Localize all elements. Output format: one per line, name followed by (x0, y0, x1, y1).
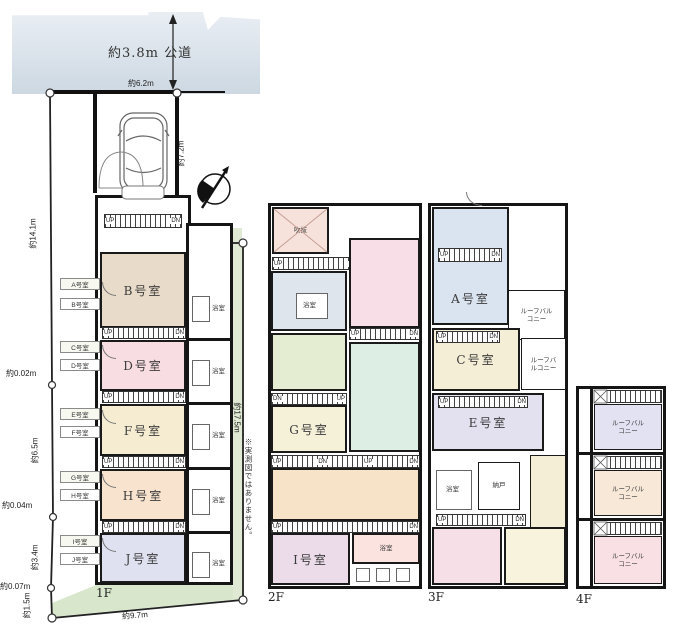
bath-label: 浴室 (303, 302, 316, 309)
dim-west-4: 約0.04m (2, 500, 32, 511)
floor-label-4f: 4F (576, 592, 592, 606)
room-2f-rose: 浴室 (352, 533, 420, 564)
wall (188, 338, 231, 341)
bath-label: 浴室 (212, 432, 225, 439)
floor-label-1f: 1F (96, 586, 112, 600)
entry-label-j: J号室 (60, 553, 100, 565)
room-2f-orange (271, 468, 420, 521)
stairs-1f-entry: UP DN (104, 214, 182, 228)
stairs-2f-g: DN UP (271, 393, 347, 405)
dn-label: DN (488, 334, 499, 340)
road-label: 約3.8m 公道 (108, 42, 192, 61)
dim-west-5: 約3.4m (29, 545, 40, 571)
dn-label: DN (317, 459, 328, 465)
bath-unit (192, 296, 210, 322)
dn-label: DN (174, 459, 185, 465)
bath-label: 浴室 (212, 560, 225, 567)
room-j-label: J号室 (126, 550, 161, 567)
dim-west-7: 約1.5m (21, 593, 32, 619)
dim-west-6: 約0.07m (0, 581, 30, 592)
bath-label: 浴室 (380, 545, 393, 552)
dim-south: 約9.7m (122, 609, 149, 622)
compass-icon (197, 166, 230, 208)
room-3f-pink (432, 527, 502, 585)
bath-unit (192, 489, 210, 515)
wall (576, 518, 666, 521)
up-label: UP (363, 459, 373, 465)
void-label: 吹抜 (294, 226, 307, 234)
gate-arcs (99, 152, 143, 188)
entry-label-c: C号室 (60, 341, 100, 353)
dn-label: DN (595, 460, 606, 466)
up-label: UP (105, 218, 115, 224)
west-fence-wall (93, 93, 97, 193)
wall (576, 452, 666, 455)
bath-label: 浴室 (446, 486, 459, 493)
storage-label: 納戸 (493, 482, 506, 489)
entry-label-b: B号室 (60, 298, 100, 310)
dn-label: DN (516, 399, 527, 405)
entry-label-f: F号室 (60, 426, 100, 438)
room-i: I号室 (271, 533, 350, 585)
up-label: UP (272, 524, 282, 530)
dn-label: DN (490, 252, 501, 258)
dn-label: DN (595, 526, 606, 532)
up-label: UP (272, 459, 282, 465)
stairs-3f-low: UP DN (436, 514, 526, 526)
bath-label: 浴室 (212, 497, 225, 504)
room-a-label: A号室 (451, 290, 490, 307)
roof-balcony-3f-2: ルーフバルコニー (521, 338, 566, 390)
car-icon (118, 113, 169, 193)
roof-balcony-label: ルーフバルコニー (520, 307, 554, 323)
entry-label-d: D号室 (60, 359, 100, 371)
dn-label: DN (272, 396, 283, 402)
room-g-label: G号室 (289, 421, 329, 438)
dim-west-1: 約14.1m (28, 218, 39, 248)
bath-unit (192, 424, 210, 450)
room-i-label: I号室 (293, 551, 328, 568)
up-label: UP (273, 261, 283, 267)
bath-label: 浴室 (212, 368, 225, 375)
roof-balcony-label: ルーフバルコニー (609, 419, 647, 435)
stairs-2f-low: UP DN (271, 521, 420, 533)
room-3f-storage: 納戸 (478, 462, 520, 510)
dn-label: DN (514, 517, 525, 523)
wall (590, 386, 593, 589)
entry-label-a: A号室 (60, 278, 100, 290)
wall (188, 531, 231, 534)
bath-unit (192, 360, 210, 386)
room-2f-void: 吹抜 (272, 207, 329, 254)
fixture (356, 568, 370, 582)
room-b-label: B号室 (124, 282, 163, 299)
room-g: G号室 (271, 405, 347, 453)
dn-label: DN (174, 394, 185, 400)
stairs-3f-a: UP DN (438, 248, 502, 262)
dim-east-building: 約17.5m (232, 402, 243, 432)
room-2f-mid-left-green (271, 333, 347, 391)
stairs-2f-pink: UP DN (349, 328, 420, 340)
stairs-3f-c: UP DN (436, 331, 500, 343)
up-label: UP (437, 517, 447, 523)
room-2f-upper-right (349, 238, 420, 328)
room-h-label: H号室 (123, 487, 163, 504)
floor-label-2f: 2F (268, 590, 284, 604)
dim-frontage: 約6.2m (128, 78, 154, 89)
fixture (396, 568, 410, 582)
up-label: UP (336, 396, 346, 402)
dn-label: DN (174, 524, 185, 530)
up-label: UP (103, 330, 113, 336)
entry-label-i: I号室 (60, 535, 100, 547)
stairs-3f-e: UP DN (438, 396, 528, 408)
stairs-4f-3: DN (594, 522, 662, 535)
dn-label: DN (174, 330, 185, 336)
roof-balcony-label: ルーフバルコニー (609, 485, 647, 501)
fixture (376, 568, 390, 582)
up-label: UP (437, 334, 447, 340)
roof-balcony-4f-1: ルーフバルコニー (594, 404, 662, 450)
stairs-1f-2: UP DN (102, 391, 186, 403)
roof-balcony-label: ルーフバルコニー (529, 356, 559, 372)
room-d-label: D号室 (123, 357, 163, 374)
dn-label: DN (408, 331, 419, 337)
floor-plan-canvas: 約3.8m 公道 約6.2m 約7.2m 約14.1m 約0.02m 約6.5m… (0, 0, 679, 627)
up-label: UP (439, 399, 449, 405)
stairs-4f-2: DN (594, 456, 662, 469)
dn-label: DN (408, 459, 419, 465)
wall (188, 467, 231, 470)
dn-label: DN (170, 218, 181, 224)
stairs-1f-4: UP DN (102, 521, 186, 533)
room-f-label: F号室 (124, 422, 162, 439)
up-label: UP (350, 331, 360, 337)
entry-label-g: G号室 (60, 471, 100, 483)
wall (188, 402, 231, 405)
up-label: UP (103, 459, 113, 465)
up-label: UP (103, 394, 113, 400)
stairs-4f-1: DN (594, 390, 662, 403)
dim-west-2: 約0.02m (6, 368, 36, 379)
room-2f-mint (349, 342, 420, 452)
dim-west-3: 約6.5m (29, 438, 40, 464)
dim-east-parking: 約7.2m (175, 141, 186, 167)
room-a: A号室 (432, 207, 509, 325)
bath-label: 浴室 (212, 305, 225, 312)
entry-label-h: H号室 (60, 489, 100, 501)
up-label: UP (439, 252, 449, 258)
stairs-1f-3: UP DN (102, 456, 186, 468)
roof-balcony-label: ルーフバルコニー (609, 552, 647, 568)
bath-unit (192, 552, 210, 578)
room-e-label: E号室 (469, 414, 508, 431)
dn-label: DN (595, 394, 606, 400)
roof-balcony-4f-2: ルーフバルコニー (594, 470, 662, 516)
entry-label-e: E号室 (60, 408, 100, 420)
stairs-1f-1: UP DN (102, 327, 186, 339)
plan-note: ※実測図ではありません。 (243, 438, 254, 608)
room-c-label: C号室 (456, 351, 495, 368)
room-3f-cream (504, 527, 566, 585)
roof-balcony-4f-3: ルーフバルコニー (594, 536, 662, 584)
floor-label-3f: 3F (428, 590, 444, 604)
stairs-2f-mid: UP DN UP DN (271, 455, 420, 468)
up-label: UP (103, 524, 113, 530)
stairs-2f-top: UP DN (272, 257, 360, 270)
dn-label: DN (408, 524, 419, 530)
